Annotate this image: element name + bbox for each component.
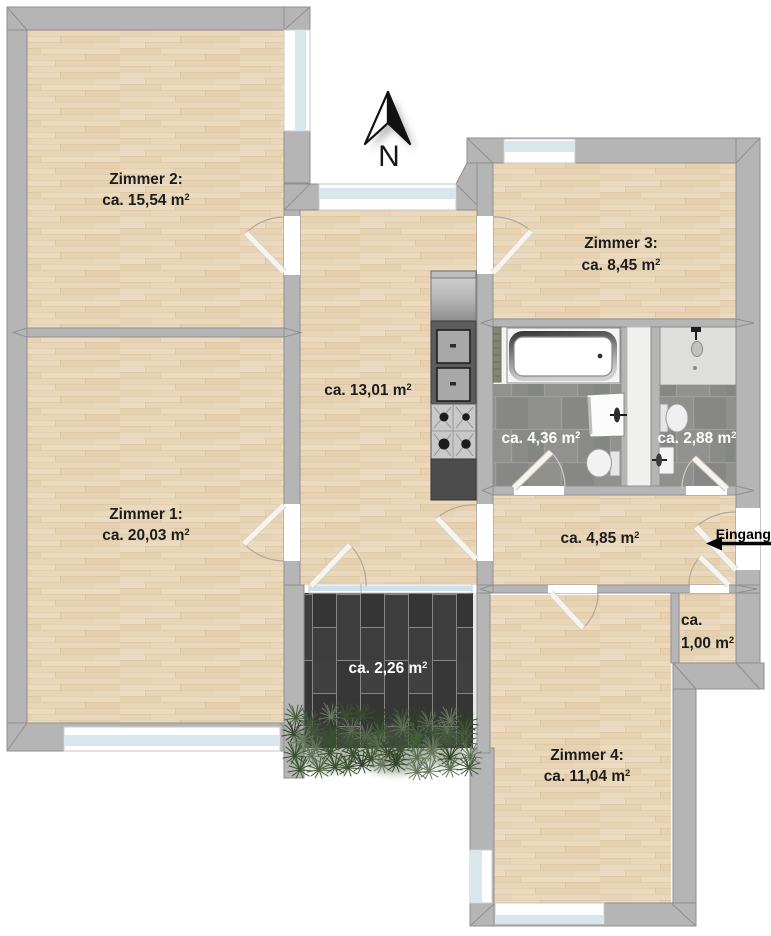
svg-text:Zimmer 3:: Zimmer 3:: [584, 235, 658, 252]
svg-text:N: N: [378, 140, 400, 173]
svg-text:ca. 2,26 m2: ca. 2,26 m2: [349, 660, 428, 677]
svg-text:ca.: ca.: [681, 612, 702, 629]
svg-text:ca. 20,03 m2: ca. 20,03 m2: [102, 527, 189, 544]
svg-text:Zimmer 1:: Zimmer 1:: [109, 506, 183, 523]
svg-text:ca. 2,88 m2: ca. 2,88 m2: [658, 430, 737, 447]
svg-text:Zimmer 2:: Zimmer 2:: [109, 171, 183, 188]
svg-text:ca. 8,45 m2: ca. 8,45 m2: [582, 257, 661, 274]
svg-text:Zimmer 4:: Zimmer 4:: [550, 747, 624, 764]
svg-text:ca. 4,85 m2: ca. 4,85 m2: [561, 530, 640, 547]
svg-text:ca. 11,04 m2: ca. 11,04 m2: [544, 768, 631, 785]
svg-text:Eingang: Eingang: [716, 526, 771, 542]
svg-text:ca. 13,01 m2: ca. 13,01 m2: [324, 382, 411, 399]
svg-text:1,00 m2: 1,00 m2: [681, 635, 734, 652]
svg-text:ca. 15,54 m2: ca. 15,54 m2: [102, 192, 189, 209]
svg-text:ca. 4,36 m2: ca. 4,36 m2: [502, 430, 581, 447]
